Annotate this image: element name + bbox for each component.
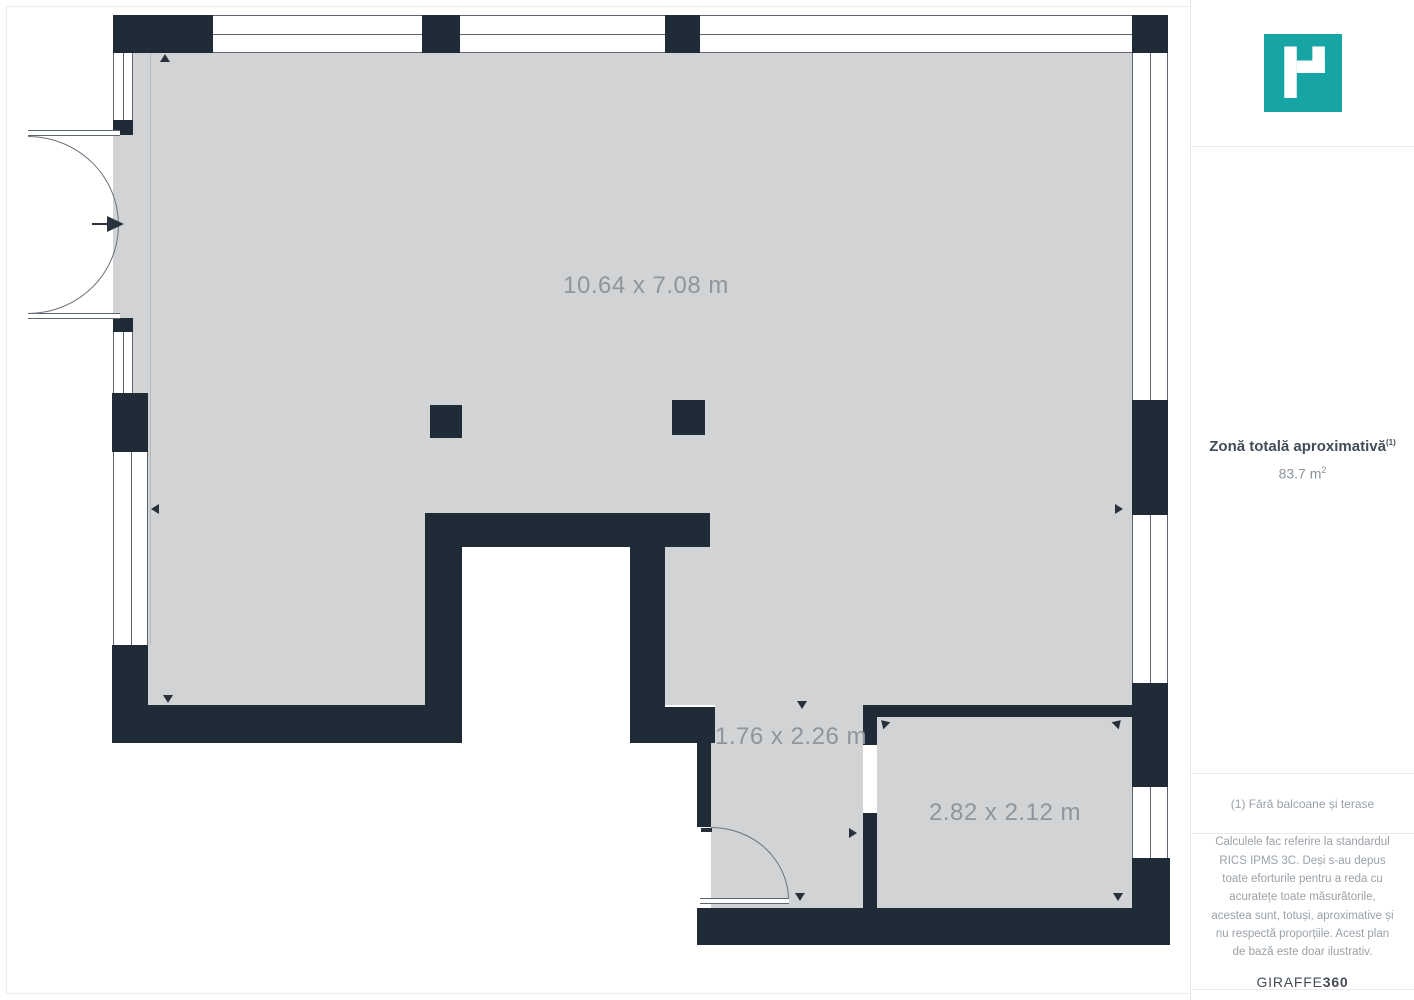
marker-small-room-bottom-right: [1113, 893, 1123, 901]
wall-right-small-block: [1132, 683, 1168, 787]
total-area-value-superscript: 2: [1321, 465, 1326, 475]
wall-small-room-left: [863, 813, 877, 908]
window-left-1: [113, 53, 133, 120]
marker-hallway-right: [849, 828, 857, 838]
hallway-door-leaf: [700, 898, 789, 904]
door-swing-arc-bottom: [28, 225, 119, 314]
wall-notch-top: [425, 513, 710, 547]
marker-hallway-top: [797, 701, 807, 709]
total-area-section: Zonă totală aproximativă(1) 83.7 m2: [1191, 147, 1414, 774]
marker-hallway-bottom: [795, 893, 805, 901]
door-leaf-bottom: [28, 313, 120, 319]
total-area-title-superscript: (1): [1386, 438, 1396, 447]
wall-right-bottom-corner: [1132, 858, 1170, 945]
marker-top-left: [160, 54, 170, 62]
total-area-title: Zonă totală aproximativă(1): [1209, 438, 1396, 455]
wall-bottom-right: [697, 908, 1170, 945]
door-leaf-top: [28, 130, 120, 136]
window-small-room-right: [1132, 787, 1168, 858]
footnote-text: (1) Fără balcoane și terase: [1231, 797, 1374, 811]
wall-left-piece-b: [113, 318, 133, 332]
wall-left-mid-block: [112, 393, 148, 452]
wall-bottom-left: [112, 705, 425, 743]
info-sidebar: Zonă totală aproximativă(1) 83.7 m2 (1) …: [1190, 0, 1414, 1000]
marker-left-wall: [151, 504, 159, 514]
window-right-1: [1132, 53, 1168, 400]
wall-top-right-corner: [1132, 15, 1168, 53]
disclaimer-text: Calculele fac referire la standardul RIC…: [1208, 833, 1397, 962]
floor-plan-canvas: 10.64 x 7.08 m 1.76 x 2.26 m 2.82 x 2.12…: [0, 0, 1190, 1000]
wall-notch-right: [630, 547, 665, 743]
window-left-2: [113, 332, 133, 393]
total-area-value: 83.7 m2: [1279, 465, 1327, 482]
marker-right-wall: [1115, 504, 1123, 514]
wall-notch-left: [425, 513, 462, 743]
column-1: [430, 405, 462, 438]
door-swing-arc-top: [28, 136, 119, 225]
brand-wordmark: GIRAFFE360: [1256, 974, 1348, 990]
dimension-label-small-room: 2.82 x 2.12 m: [929, 799, 1081, 827]
window-right-2: [1132, 515, 1168, 683]
brand-suffix: 360: [1323, 974, 1349, 990]
dimension-label-hallway: 1.76 x 2.26 m: [715, 723, 867, 751]
inner-wall-face-line: [150, 53, 151, 645]
logo-section: [1191, 0, 1414, 147]
floor-plan-page: 10.64 x 7.08 m 1.76 x 2.26 m 2.82 x 2.12…: [0, 0, 1414, 1000]
wall-top-mullion-2: [665, 15, 700, 53]
giraffe360-logo-icon: [1264, 34, 1342, 112]
window-left-3: [113, 452, 148, 645]
wall-small-room-top: [863, 705, 1132, 717]
wall-hallway-left: [697, 743, 711, 827]
door-arrow-icon: [107, 216, 124, 232]
hallway-door-hinge: [701, 828, 712, 832]
disclaimer-section: Calculele fac referire la standardul RIC…: [1191, 834, 1414, 990]
dimension-label-main-room: 10.64 x 7.08 m: [563, 272, 729, 300]
void-notch: [462, 547, 630, 705]
marker-bottom-left: [163, 695, 173, 703]
wall-top-mullion-1: [422, 15, 460, 53]
wall-right-mid-block: [1132, 400, 1168, 515]
brand-name: GIRAFFE: [1256, 974, 1322, 990]
footnote-section: (1) Fără balcoane și terase: [1191, 774, 1414, 834]
wall-bottom-mid: [665, 707, 715, 743]
window-top-band: [113, 15, 1167, 53]
wall-top-left-corner: [113, 15, 213, 53]
column-2: [672, 400, 705, 435]
